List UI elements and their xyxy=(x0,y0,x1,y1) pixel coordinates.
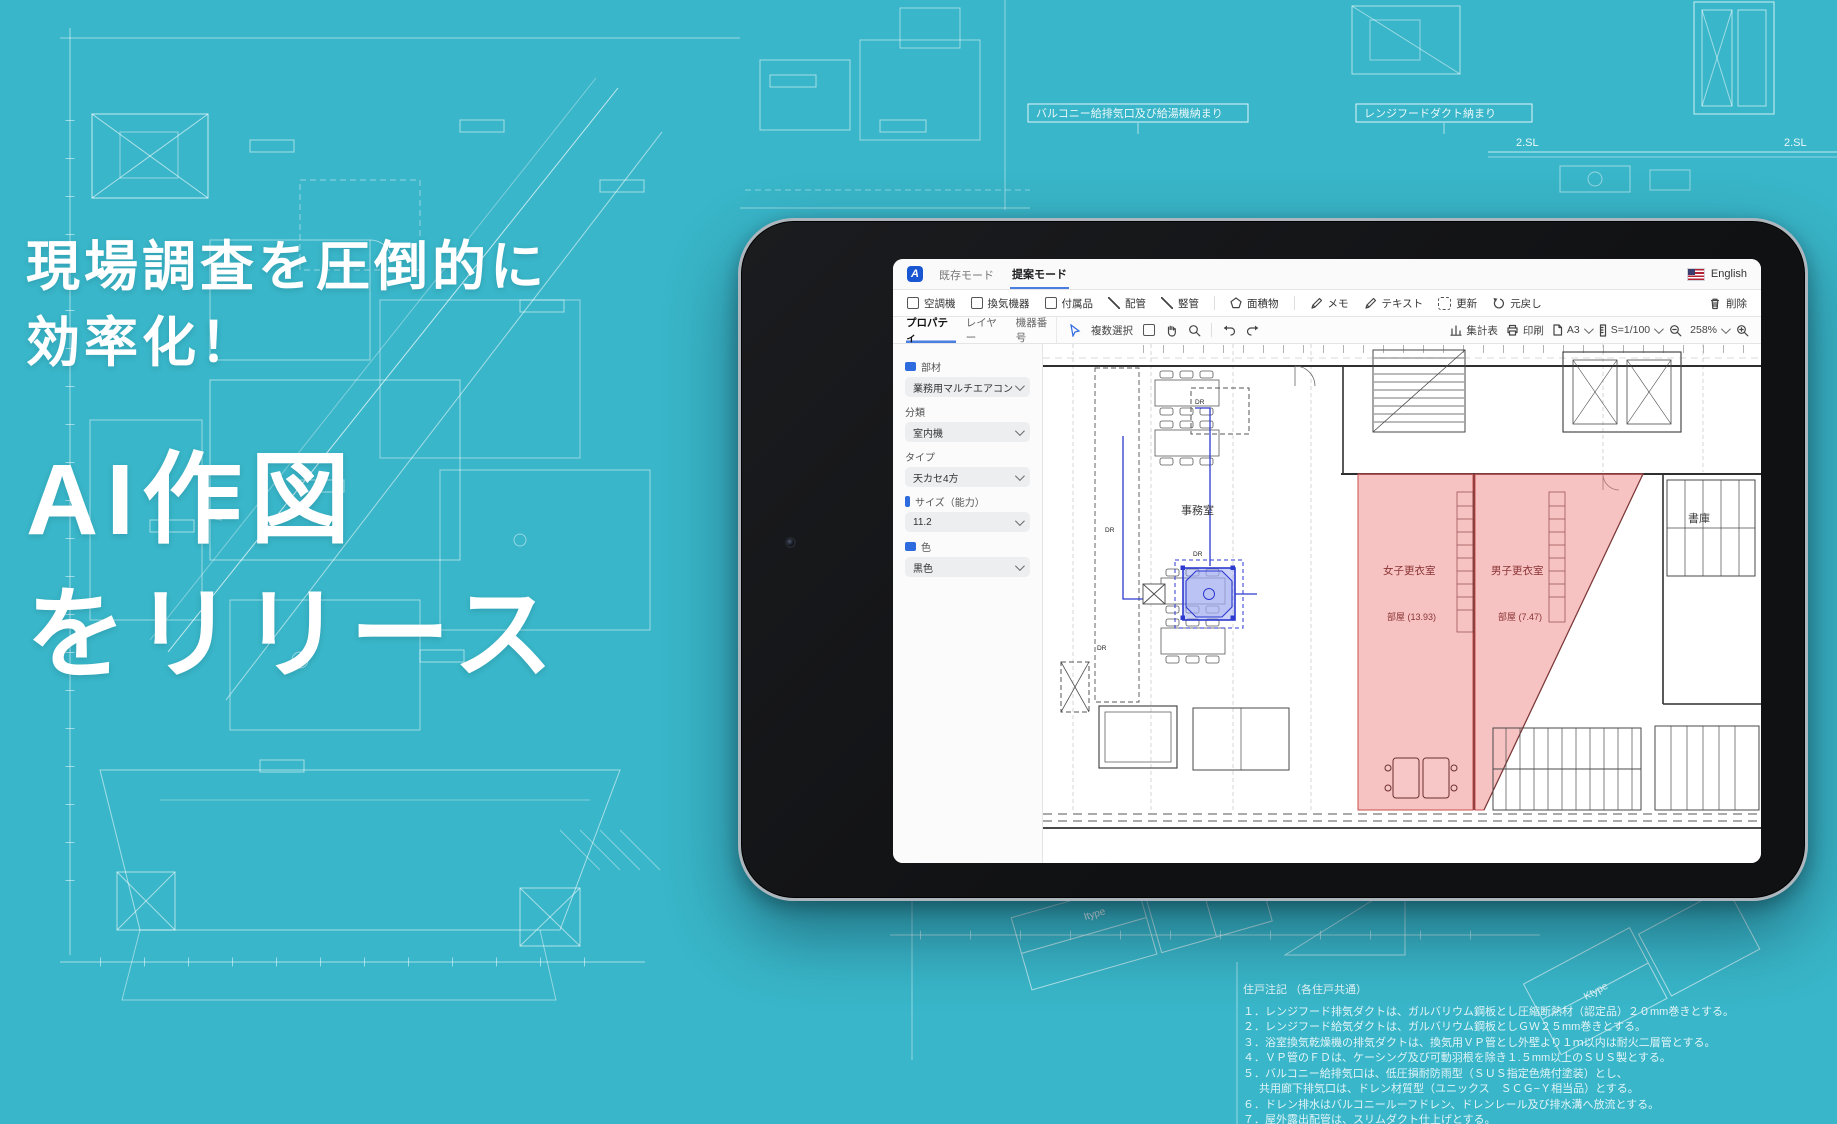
site-note-line: １．レンジフード排気ダクトは、ガルバリウム鋼板とし圧縮断熱材（認定品）２０mm巻… xyxy=(1243,1005,1837,1021)
tab-equipment-number[interactable]: 機器番号 xyxy=(1016,317,1056,343)
tool-text[interactable]: テキスト xyxy=(1364,296,1424,311)
damper-mark: DR xyxy=(1097,645,1107,652)
hand-icon[interactable] xyxy=(1165,324,1178,337)
type-select[interactable]: 天カセ4方 xyxy=(905,467,1030,487)
pencil-icon xyxy=(1364,297,1377,310)
magnifier-icon[interactable] xyxy=(1188,324,1201,337)
room-label-women: 女子更衣室 xyxy=(1383,564,1436,577)
site-note-line: ２．レンジフード給気ダクトは、ガルバリウム鋼板としＧＷ２５mm巻きとする。 xyxy=(1243,1020,1837,1036)
tool-undo[interactable]: 元戻し xyxy=(1492,296,1542,311)
background-callout-balcony: バルコニー給排気口及び給湯機納まり xyxy=(1036,106,1223,120)
tool-update[interactable]: 更新 xyxy=(1438,296,1477,311)
site-note-line: ４．ＶＰ管のＦＤは、ケーシング及び可動羽根を除き１.５mm以上のＳＵＳ製とする。 xyxy=(1243,1051,1837,1067)
page: バルコニー給排気口及び給湯機納まり レンジフードダクト納まり 2.SL 2.SL… xyxy=(0,0,1837,1124)
part-select[interactable]: 業務用マルチエアコン xyxy=(905,377,1030,397)
chevron-down-icon xyxy=(1015,471,1025,481)
canvas-tools: 複数選択 xyxy=(1057,323,1450,338)
page-icon xyxy=(1552,324,1563,336)
paper-size-select[interactable]: A3 xyxy=(1552,324,1591,336)
room-area-women: 部屋 (13.93) xyxy=(1387,611,1436,622)
field-label-part: 部材 xyxy=(905,359,1030,374)
paper-size-value: A3 xyxy=(1567,324,1580,336)
field-label-type: タイプ xyxy=(905,449,1030,464)
undo-arrow-icon xyxy=(1492,297,1505,310)
properties-panel: 部材 業務用マルチエアコン 分類 室内機 タイプ xyxy=(893,344,1043,863)
site-note-line: 共用廊下排気口は、ドレン材質型（ユニックス ＳＣＧ−Ｙ相当品）とする。 xyxy=(1243,1082,1837,1098)
tool-label: 空調機 xyxy=(924,296,956,311)
chevron-down-icon xyxy=(1015,516,1025,526)
room-label-men: 男子更衣室 xyxy=(1491,564,1544,577)
room-label-office: 事務室 xyxy=(1181,503,1214,517)
background-callout-rangehood: レンジフードダクト納まり xyxy=(1364,106,1496,120)
print-button[interactable]: 印刷 xyxy=(1506,323,1544,338)
storage-shelves xyxy=(1667,480,1755,576)
size-select-value: 11.2 xyxy=(913,517,932,528)
tool-piping[interactable]: 配管 xyxy=(1108,296,1146,311)
summary-table-button[interactable]: 集計表 xyxy=(1450,323,1498,338)
room-area-men: 部屋 (7.47) xyxy=(1498,611,1542,622)
tool-label: 換気機器 xyxy=(988,296,1030,311)
checkbox-icon xyxy=(1045,297,1057,309)
dashed-square-icon xyxy=(1438,297,1451,310)
canvas-right-tools: 集計表 印刷 A3 xyxy=(1450,323,1761,338)
app-subbar: プロパティ レイヤー 機器番号 複数選択 xyxy=(893,317,1761,344)
tool-label: 付属品 xyxy=(1062,296,1094,311)
damper-mark: DR xyxy=(1195,399,1205,406)
zoom-out-icon[interactable] xyxy=(1669,324,1682,337)
language-label: English xyxy=(1711,268,1747,280)
diagonal-line-icon xyxy=(1108,297,1120,309)
tool-ventilation[interactable]: 換気機器 xyxy=(971,296,1030,311)
site-note-line: ６．ドレン排水はバルコニールーフドレン、ドレンレール及び排水溝へ放流とする。 xyxy=(1243,1098,1837,1114)
color-select-value: 黒色 xyxy=(913,560,933,575)
delete-button[interactable]: 削除 xyxy=(1709,296,1747,311)
tool-riser[interactable]: 竪管 xyxy=(1161,296,1199,311)
tool-accessories[interactable]: 付属品 xyxy=(1045,296,1094,311)
damper-mark: DR xyxy=(1105,527,1115,534)
pentagon-icon xyxy=(1230,297,1242,309)
site-note-line: ７．屋外露出配管は、スリムダクト仕上げとする。 xyxy=(1243,1113,1837,1124)
language-switcher[interactable]: English xyxy=(1687,268,1747,281)
front-camera xyxy=(787,539,794,546)
diagonal-line-icon xyxy=(1161,297,1173,309)
tool-label: 更新 xyxy=(1456,296,1477,311)
equipment-blocks xyxy=(1099,706,1289,770)
tool-label: 削除 xyxy=(1726,296,1747,311)
multi-select-label: 複数選択 xyxy=(1091,323,1133,338)
tool-ac-unit[interactable]: 空調機 xyxy=(907,296,956,311)
summary-table-label: 集計表 xyxy=(1466,323,1498,338)
site-note-line: ５．バルコニー給排気口は、低圧損耐防雨型（ＳＵＳ指定色焼付塗装）とし、 xyxy=(1243,1067,1837,1083)
field-label-color: 色 xyxy=(905,539,1030,554)
zoom-level-value: 258% xyxy=(1690,324,1717,336)
pencil-icon xyxy=(1310,297,1323,310)
tool-label: 面積物 xyxy=(1247,296,1279,311)
tab-proposal-mode[interactable]: 提案モード xyxy=(1010,259,1069,289)
drawing-canvas-area[interactable]: 事務室 書庫 女子更衣室 男子更衣室 部屋 (13.93) 部屋 (7.47) xyxy=(1043,344,1761,863)
summary-chart-icon xyxy=(1450,324,1462,336)
headline-line-1: 現場調査を圧倒的に xyxy=(26,240,548,294)
headline-line-3: AI作図 xyxy=(26,450,358,550)
panel-tabs: プロパティ レイヤー 機器番号 xyxy=(893,317,1057,343)
ruler-icon xyxy=(1599,324,1607,337)
tablet-device: A 既存モード 提案モード English 空調機 換気機器 xyxy=(738,218,1808,901)
level-mark: 2.SL xyxy=(1516,137,1539,149)
stairs xyxy=(1493,726,1759,810)
tool-label: 竪管 xyxy=(1178,296,1199,311)
checkbox-icon xyxy=(907,297,919,309)
unit-type-label: Itype xyxy=(1083,906,1107,923)
ac-unit-icon xyxy=(905,362,916,371)
field-label-category: 分類 xyxy=(905,404,1030,419)
site-note-line: ３．浴室換気乾燥機の排気ダクトは、換気用ＶＰ管とし外壁より１ｍ以内は耐火二層管と… xyxy=(1243,1036,1837,1052)
damper-mark: DR xyxy=(1193,551,1203,558)
scale-value: S=1/100 xyxy=(1611,324,1650,336)
part-select-value: 業務用マルチエアコン xyxy=(913,380,1013,395)
size-bar-icon xyxy=(905,496,910,507)
zoom-in-icon[interactable] xyxy=(1736,324,1749,337)
trash-icon xyxy=(1709,297,1721,310)
tab-layers[interactable]: レイヤー xyxy=(966,317,1006,343)
chevron-down-icon xyxy=(1015,561,1025,571)
print-label: 印刷 xyxy=(1523,323,1544,338)
chevron-down-icon xyxy=(1015,426,1025,436)
tool-label: 元戻し xyxy=(1510,296,1542,311)
tool-label: 配管 xyxy=(1125,296,1146,311)
chevron-down-icon xyxy=(1721,324,1731,334)
multi-select-checkbox[interactable] xyxy=(1143,324,1155,336)
color-select[interactable]: 黒色 xyxy=(905,557,1030,577)
stairs xyxy=(1373,350,1465,432)
equipment-symbol[interactable] xyxy=(1143,584,1165,604)
chevron-down-icon xyxy=(1654,324,1664,334)
app-toolbar: 空調機 換気機器 付属品 配管 竪管 xyxy=(893,290,1761,317)
room-label-storage: 書庫 xyxy=(1688,511,1710,525)
undo-icon[interactable] xyxy=(1222,324,1236,336)
site-notes-title: 住戸注記 （各住戸共通） xyxy=(1243,983,1837,999)
size-select[interactable]: 11.2 xyxy=(905,512,1030,532)
printer-icon xyxy=(1506,324,1519,336)
tab-existing-mode[interactable]: 既存モード xyxy=(937,260,996,288)
scale-select[interactable]: S=1/100 xyxy=(1599,324,1661,337)
redo-icon[interactable] xyxy=(1246,324,1260,336)
checkbox-icon xyxy=(971,297,983,309)
field-label-size: サイズ（能力） xyxy=(905,494,1030,509)
app-screen: A 既存モード 提案モード English 空調機 換気機器 xyxy=(893,259,1761,863)
tab-properties[interactable]: プロパティ xyxy=(906,317,956,343)
color-icon xyxy=(905,542,916,551)
chevron-down-icon xyxy=(1584,324,1594,334)
category-select-value: 室内機 xyxy=(913,425,943,440)
us-flag-icon xyxy=(1687,268,1705,281)
tool-memo[interactable]: メモ xyxy=(1310,296,1349,311)
tool-label: メモ xyxy=(1328,296,1349,311)
level-mark: 2.SL xyxy=(1784,137,1807,149)
elevator-shaft xyxy=(1563,352,1681,432)
tool-area-object[interactable]: 面積物 xyxy=(1230,296,1279,311)
category-select[interactable]: 室内機 xyxy=(905,422,1030,442)
tool-label: テキスト xyxy=(1382,296,1424,311)
cursor-arrow-icon[interactable] xyxy=(1069,324,1081,337)
chevron-down-icon xyxy=(1015,381,1025,391)
app-logo-icon: A xyxy=(907,266,923,282)
headline-line-4: をリリース xyxy=(26,585,561,685)
zoom-level-select[interactable]: 258% xyxy=(1690,324,1728,336)
headline-line-2: 効率化！ xyxy=(26,316,258,370)
site-notes: 住戸注記 （各住戸共通） １．レンジフード排気ダクトは、ガルバリウム鋼板とし圧縮… xyxy=(1243,983,1837,1124)
app-navbar: A 既存モード 提案モード English xyxy=(893,259,1761,290)
type-select-value: 天カセ4方 xyxy=(913,470,959,485)
selected-ac-unit[interactable] xyxy=(1175,560,1243,628)
floor-plan-canvas[interactable]: 事務室 書庫 女子更衣室 男子更衣室 部屋 (13.93) 部屋 (7.47) xyxy=(1043,344,1761,863)
